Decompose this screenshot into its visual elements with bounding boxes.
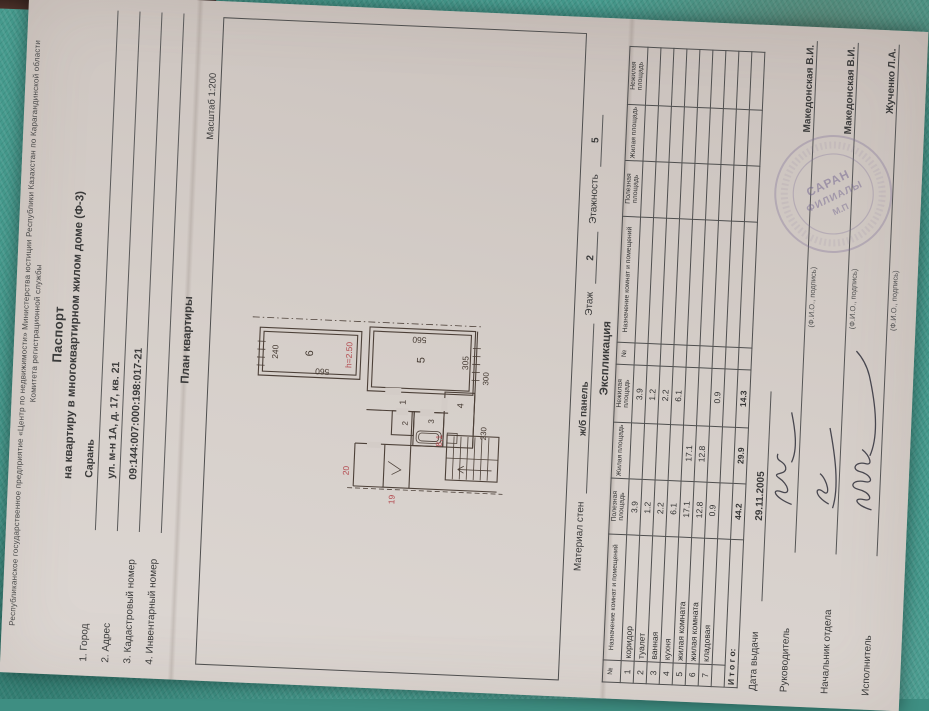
red-mark-19: 19 xyxy=(386,494,396,504)
table-cell-empty xyxy=(747,110,762,167)
table-cell: 7 xyxy=(698,664,712,687)
height-mark: h=2.50 xyxy=(343,341,354,368)
room-3-number: 3 xyxy=(426,418,435,423)
room-2-number: 2 xyxy=(400,420,409,425)
door-swing-mark xyxy=(387,461,401,475)
floors-value: 5 xyxy=(589,114,603,166)
role-executor: Исполнитель xyxy=(851,555,887,696)
field-city-label: 1. Город xyxy=(78,530,96,662)
col-num: № xyxy=(602,660,621,683)
table-cell: 1 xyxy=(620,661,634,684)
table-cell: 5 xyxy=(672,663,686,686)
table-cell-empty xyxy=(749,52,765,111)
red-mark-8-1: 8,1 xyxy=(433,434,444,446)
table-cell-empty xyxy=(660,344,674,367)
total-living-cell: 29.9 xyxy=(733,427,748,484)
room-6-number: 6 xyxy=(304,350,316,357)
stamp-graphic: САРАН ФИЛИАЛЫ М.П xyxy=(767,127,900,260)
role-dept-head: Начальник отдела xyxy=(810,554,846,695)
floors-label: Этажность xyxy=(587,174,600,224)
table-cell: 3 xyxy=(646,662,660,685)
table-cell: 6 xyxy=(685,663,699,686)
identification-fields: 1. Город Сарань 2. Адрес ул. м-н 1А, д. … xyxy=(75,10,184,665)
table-cell-empty xyxy=(634,343,648,366)
role-director: Руководитель xyxy=(769,552,805,693)
table-cell-empty xyxy=(686,345,700,368)
dim-230: 230 xyxy=(478,426,488,440)
stamp-mp: М.П xyxy=(831,201,850,217)
table-cell: 2 xyxy=(633,661,647,684)
issue-date-row: Дата выдачи 29.11.2005 xyxy=(746,391,771,691)
plan-room-labels: 240 6 560 5 560 305 1 2 3 4 230 300 xyxy=(266,329,492,441)
explication-table: № Назначение комнат и помещений Полезная… xyxy=(601,46,765,688)
table-cell: 4 xyxy=(659,662,673,685)
red-mark-20: 20 xyxy=(340,465,350,475)
floor-plan: 240 6 560 5 560 305 1 2 3 4 230 300 h=2.… xyxy=(196,18,586,679)
passport-document-page: Республиканское государственное предприя… xyxy=(0,0,928,711)
room-1-number: 1 xyxy=(397,399,407,404)
round-stamp: САРАН ФИЛИАЛЫ М.П xyxy=(767,127,900,260)
table-cell-empty xyxy=(738,347,752,370)
dim-560-room5: 560 xyxy=(411,335,426,346)
window-hatch-room6 xyxy=(256,341,265,365)
total-useful-cell: 44.2 xyxy=(730,483,745,540)
table-cell-empty xyxy=(699,346,713,369)
table-cell-empty xyxy=(673,345,687,368)
total-nonliving-cell: 14.3 xyxy=(735,369,751,428)
executor-name: Жученко Л.А. xyxy=(885,44,899,114)
table-cell-empty xyxy=(744,166,759,223)
dim-305: 305 xyxy=(460,355,471,370)
table-cell-empty xyxy=(725,347,739,370)
field-address-label: 2. Адрес xyxy=(100,531,118,663)
dim-300: 300 xyxy=(481,371,491,385)
materials-label: Материал стен xyxy=(572,501,586,571)
room-5-number: 5 xyxy=(415,357,427,364)
issue-date-value: 29.11.2005 xyxy=(750,391,771,601)
plan-walls xyxy=(245,317,509,495)
col-num-2: № xyxy=(616,342,635,365)
plan-sheet-frame: 240 6 560 5 560 305 1 2 3 4 230 300 h=2.… xyxy=(195,17,587,680)
field-inventory-label: 4. Инвентарный номер xyxy=(144,532,162,664)
table-cell-empty xyxy=(647,344,661,367)
room-4-number: 4 xyxy=(455,403,465,408)
materials-value: ж/б панель xyxy=(575,323,594,493)
document-content: Республиканское государственное предприя… xyxy=(0,0,928,711)
dim-560-room6: 560 xyxy=(314,366,329,377)
issue-date-label: Дата выдачи xyxy=(747,601,762,691)
stairs-direction-arrow xyxy=(457,466,491,474)
floor-label: Этаж xyxy=(583,292,595,316)
dim-240: 240 xyxy=(269,344,280,359)
floor-value: 2 xyxy=(584,232,598,284)
table-cell-empty xyxy=(711,665,725,688)
field-cadastral-label: 3. Кадастровый номер xyxy=(122,531,140,663)
table-cell-empty xyxy=(712,346,726,369)
